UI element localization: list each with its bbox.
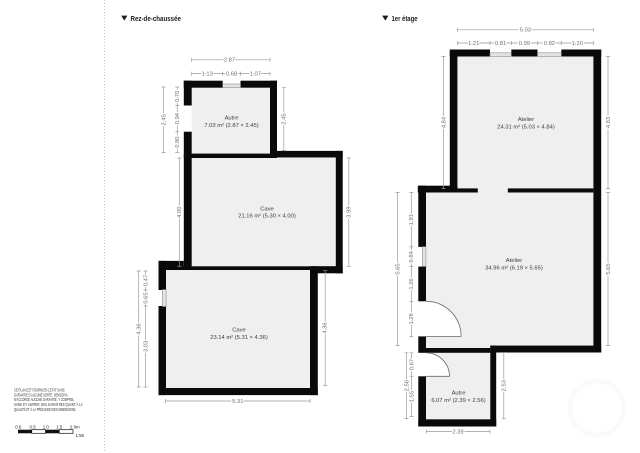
svg-text:Cave: Cave <box>232 328 246 334</box>
svg-text:5.65: 5.65 <box>396 263 402 274</box>
svg-text:1.20: 1.20 <box>572 41 583 47</box>
svg-text:0.5: 0.5 <box>30 424 37 429</box>
svg-text:0.65: 0.65 <box>143 292 149 303</box>
svg-text:1.07: 1.07 <box>250 72 261 78</box>
svg-text:0.81: 0.81 <box>495 41 506 47</box>
svg-text:1.55: 1.55 <box>410 391 416 402</box>
svg-text:3.99: 3.99 <box>347 207 353 218</box>
svg-text:23.14 m² (5.31 × 4.36): 23.14 m² (5.31 × 4.36) <box>210 335 268 341</box>
svg-text:1.28: 1.28 <box>409 313 415 324</box>
svg-text:1:56: 1:56 <box>75 433 84 438</box>
svg-text:0.70: 0.70 <box>175 91 181 102</box>
svg-text:4.36: 4.36 <box>322 322 328 333</box>
svg-text:2.0m: 2.0m <box>70 424 80 429</box>
svg-text:2.53: 2.53 <box>502 380 508 391</box>
svg-text:Atelier: Atelier <box>506 258 523 264</box>
svg-text:4.36: 4.36 <box>137 323 143 334</box>
svg-text:0.82: 0.82 <box>544 41 555 47</box>
svg-text:0.94: 0.94 <box>175 112 181 124</box>
svg-text:2.39: 2.39 <box>452 429 463 435</box>
svg-text:1.0: 1.0 <box>43 424 50 429</box>
svg-text:4.00: 4.00 <box>177 207 183 218</box>
svg-text:21.16 m² (5.30 × 4.00): 21.16 m² (5.30 × 4.00) <box>238 214 296 220</box>
svg-text:0.68: 0.68 <box>226 72 237 78</box>
svg-text:5.65: 5.65 <box>606 263 612 274</box>
svg-text:QUALITÉ ET À LA PRÉCISION DES: QUALITÉ ET À LA PRÉCISION DES DIMENSIONS… <box>14 407 76 412</box>
svg-text:2.87: 2.87 <box>224 58 235 64</box>
svg-text:5.31: 5.31 <box>232 399 243 405</box>
svg-text:4.83: 4.83 <box>606 117 612 128</box>
svg-text:34.96 m² (6.19 × 5.65): 34.96 m² (6.19 × 5.65) <box>485 265 543 271</box>
svg-text:1.5: 1.5 <box>56 424 63 429</box>
svg-text:2.56: 2.56 <box>404 380 410 391</box>
svg-text:0.99: 0.99 <box>519 41 530 47</box>
svg-text:1.21: 1.21 <box>468 41 479 47</box>
svg-text:0.47: 0.47 <box>143 275 149 286</box>
svg-text:1.13: 1.13 <box>202 72 213 78</box>
svg-text:0.87: 0.87 <box>410 359 416 370</box>
svg-text:24.31 m² (5.03 × 4.84): 24.31 m² (5.03 × 4.84) <box>497 124 555 130</box>
svg-text:5.03: 5.03 <box>520 28 531 34</box>
svg-text:1er étage: 1er étage <box>392 14 418 23</box>
svg-text:6.07 m² (2.39 × 2.56): 6.07 m² (2.39 × 2.56) <box>431 398 485 404</box>
svg-text:Autre: Autre <box>452 391 466 397</box>
svg-text:Autre: Autre <box>225 116 239 122</box>
svg-text:7.03 m² (2.87 × 2.45): 7.03 m² (2.87 × 2.45) <box>204 123 258 129</box>
svg-text:2.45: 2.45 <box>282 113 288 124</box>
svg-text:Cave: Cave <box>260 206 274 212</box>
svg-text:4.84: 4.84 <box>441 116 447 128</box>
svg-text:1.26: 1.26 <box>409 278 415 289</box>
svg-text:Rez-de-chaussée: Rez-de-chaussée <box>131 14 182 23</box>
svg-text:0.0: 0.0 <box>15 424 22 429</box>
svg-text:0.80: 0.80 <box>175 136 181 147</box>
svg-text:1.91: 1.91 <box>409 214 415 225</box>
svg-text:0.84: 0.84 <box>409 250 415 262</box>
svg-text:Atelier: Atelier <box>518 117 535 123</box>
svg-text:2.45: 2.45 <box>162 114 168 125</box>
svg-text:3.03: 3.03 <box>143 341 149 352</box>
